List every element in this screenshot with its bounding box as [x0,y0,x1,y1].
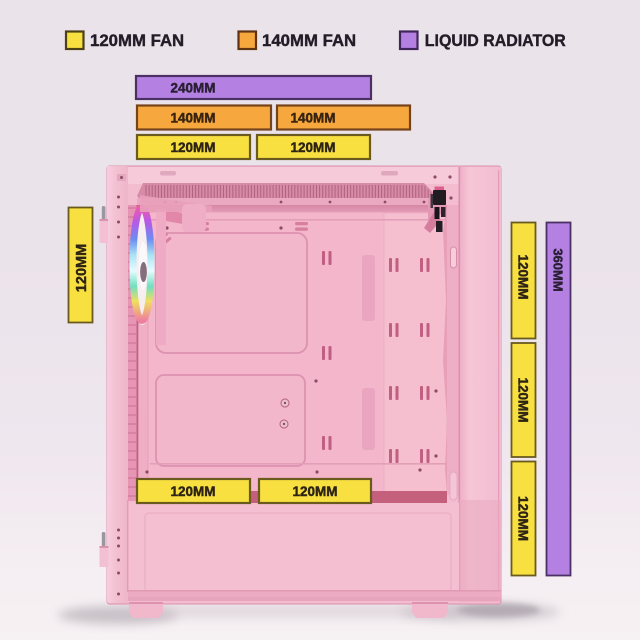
svg-text:120MM: 120MM [290,140,335,155]
svg-text:120MM: 120MM [292,484,337,499]
svg-text:120MM: 120MM [515,377,530,422]
svg-text:120MM: 120MM [515,254,530,299]
svg-text:120MM FAN: 120MM FAN [90,31,184,50]
svg-text:120MM: 120MM [74,244,90,292]
svg-text:LIQUID RADIATOR: LIQUID RADIATOR [425,31,566,50]
svg-text:140MM FAN: 140MM FAN [262,31,356,50]
svg-text:120MM: 120MM [515,496,530,541]
svg-text:140MM: 140MM [290,111,335,126]
svg-text:240MM: 240MM [170,81,215,96]
svg-text:120MM: 120MM [170,484,215,499]
svg-text:360MM: 360MM [551,248,566,291]
svg-text:140MM: 140MM [170,111,215,126]
svg-text:120MM: 120MM [170,140,215,155]
